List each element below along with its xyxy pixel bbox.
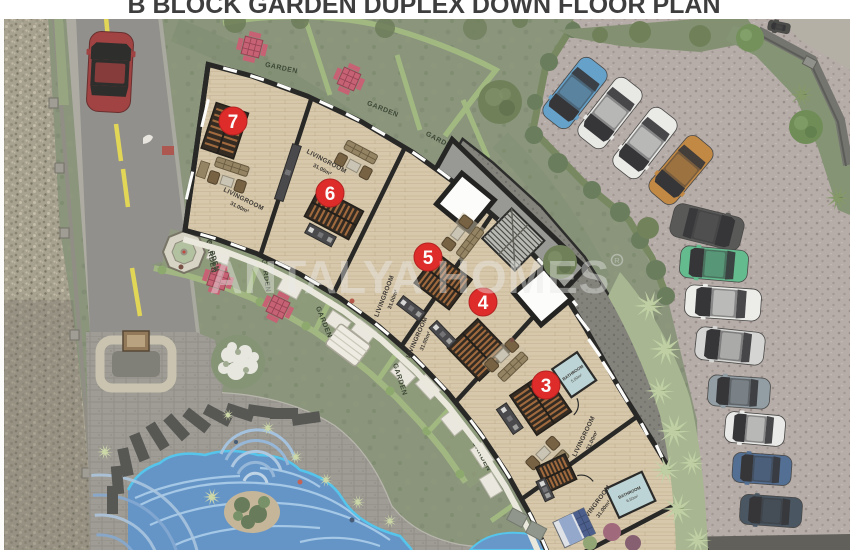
svg-text:B BLOCK GARDEN DUPLEX DOWN FLO: B BLOCK GARDEN DUPLEX DOWN FLOOR PLAN [127,0,720,19]
